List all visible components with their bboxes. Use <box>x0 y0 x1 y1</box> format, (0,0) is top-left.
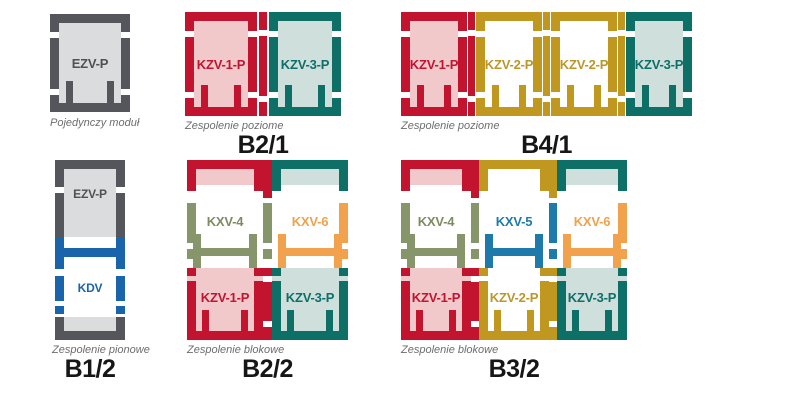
kxv-side-bar <box>471 249 479 259</box>
module-label: KZV-1-P <box>194 12 248 116</box>
module-side-stub <box>339 268 348 276</box>
module-label: KZV-3-P <box>272 286 348 308</box>
kxv-side-bar <box>618 203 627 243</box>
divider-bar-top <box>263 160 272 198</box>
module-side-stub <box>557 268 566 276</box>
frame-notch <box>458 92 467 98</box>
frame-notch <box>121 32 130 38</box>
coupling-bar-cross <box>64 248 116 257</box>
group-title: B2/1 <box>185 131 341 160</box>
frame-notch <box>551 92 560 98</box>
top-bracket-fill <box>281 169 339 185</box>
top-bracket-fill <box>566 169 618 185</box>
module-label: KXV-6 <box>557 210 627 232</box>
frame-notch <box>185 31 194 37</box>
frame-notch <box>50 32 59 38</box>
module-frame-left <box>269 12 278 116</box>
kxv-side-bar <box>339 249 348 259</box>
top-bracket-stub <box>339 169 348 191</box>
module-label: KXV-6 <box>272 210 348 232</box>
module-frame-right <box>116 169 125 239</box>
module-frame-right <box>608 12 617 116</box>
module-label: KZV-2-P <box>479 286 549 308</box>
frame-inner-stub <box>494 310 501 331</box>
connector-notch <box>543 30 550 36</box>
connector-notch <box>263 276 272 282</box>
module-label: EZV-P <box>55 184 125 204</box>
frame-notch <box>608 92 617 98</box>
module-label: KZV-1-P <box>401 286 471 308</box>
connector-notch <box>543 96 550 102</box>
frame-notch <box>121 89 130 95</box>
top-bracket-bar <box>401 160 471 169</box>
frame-notch <box>551 31 560 37</box>
module-frame-left <box>551 12 560 116</box>
connector-notch <box>618 30 625 36</box>
frame-inner-stub <box>287 310 294 331</box>
frame-notch <box>608 31 617 37</box>
module-side-stub <box>462 268 471 276</box>
frame-notch <box>683 31 692 37</box>
connector-notch <box>471 321 479 327</box>
connector-notch <box>549 321 557 327</box>
module-label: KZV-2-P <box>485 12 533 116</box>
frame-notch <box>332 31 341 37</box>
module-label: KXV-4 <box>187 210 263 232</box>
top-bracket-fill <box>488 169 540 185</box>
kxv-bracket-bar <box>407 248 465 256</box>
module-frame-right <box>116 317 125 331</box>
module-label: KZV-1-P <box>187 286 263 308</box>
module-frame-left <box>476 12 485 116</box>
top-bracket-fill <box>196 169 254 185</box>
frame-inner-stub <box>241 310 248 331</box>
module-side-stub <box>116 306 125 314</box>
module-frame-right <box>121 14 130 112</box>
frame-inner-stub <box>202 310 209 331</box>
frame-notch <box>248 92 257 98</box>
module-side-stub <box>479 268 488 276</box>
group-title: B3/2 <box>401 355 627 384</box>
module-frame-left <box>626 12 635 116</box>
frame-notch <box>683 92 692 98</box>
kxv-bracket-bar <box>563 248 621 256</box>
connector-notch <box>618 96 625 102</box>
group-title: B1/2 <box>55 355 125 384</box>
top-bracket-stub <box>401 169 410 191</box>
kxv-bracket-bar <box>485 248 543 256</box>
coupling-bar-right <box>116 237 125 269</box>
top-bracket-bar <box>272 160 348 169</box>
kxv-side-bar <box>187 203 196 243</box>
connector-notch <box>549 276 557 282</box>
module-frame-right <box>683 12 692 116</box>
kxv-side-bar <box>471 203 479 243</box>
module-frame-left <box>55 317 64 331</box>
top-bracket-stub <box>254 169 263 191</box>
module-frame-top <box>55 160 125 169</box>
frame-inner-stub <box>605 310 612 331</box>
frame-notch <box>269 92 278 98</box>
module-side-stub <box>401 268 410 276</box>
top-bracket-stub <box>187 169 196 191</box>
divider-bar-top <box>549 160 557 198</box>
kxv-bracket-bar <box>278 248 342 256</box>
top-bracket-stub <box>557 169 566 191</box>
kxv-side-bar <box>187 249 196 259</box>
top-bracket-bar <box>557 160 627 169</box>
frame-inner-stub <box>572 310 579 331</box>
top-bracket-stub <box>272 169 281 191</box>
module-label: KZV-2-P <box>560 12 608 116</box>
kxv-side-bar <box>618 249 627 259</box>
module-label: KXV-4 <box>401 210 471 232</box>
divider-bar-top <box>471 160 479 198</box>
module-frame-left <box>401 12 410 116</box>
module-side-stub <box>254 268 263 276</box>
top-bracket-stub <box>479 169 488 191</box>
kxv-side-bar <box>549 249 557 259</box>
group-title: B2/2 <box>187 355 348 384</box>
connector-notch <box>468 96 475 102</box>
module-label: KZV-3-P <box>557 286 627 308</box>
group-caption: Pojedynczy moduł <box>50 117 139 129</box>
module-frame-left <box>50 14 59 112</box>
module-label: KXV-5 <box>479 210 549 232</box>
connector-notch <box>259 96 267 102</box>
module-frame-right <box>248 12 257 116</box>
top-bracket-stub <box>462 169 471 191</box>
flashing-combinations-diagram: EZV-PPojedynczy modułKZV-1-PKZV-3-PZespo… <box>0 0 800 400</box>
kxv-side-bar <box>339 203 348 243</box>
module-label: KZV-3-P <box>278 12 332 116</box>
module-frame-right <box>458 12 467 116</box>
frame-notch <box>269 31 278 37</box>
module-frame-bottom <box>187 331 263 340</box>
top-bracket-stub <box>540 169 549 191</box>
module-frame-right <box>332 12 341 116</box>
frame-notch <box>533 31 542 37</box>
module-side-stub <box>618 268 627 276</box>
kxv-side-bar <box>401 249 410 259</box>
frame-notch <box>533 92 542 98</box>
kxv-side-bar <box>263 249 272 259</box>
module-frame-bottom <box>401 331 471 340</box>
kxv-side-bar <box>263 203 272 243</box>
module-frame-left <box>185 12 194 116</box>
coupling-bar-left <box>55 237 64 269</box>
frame-notch <box>626 31 635 37</box>
module-side-stub <box>540 268 549 276</box>
module-frame-left <box>55 169 64 239</box>
frame-notch <box>476 92 485 98</box>
frame-notch <box>185 92 194 98</box>
module-label: KZV-1-P <box>410 12 458 116</box>
group-title: B4/1 <box>401 131 692 160</box>
module-side-stub <box>272 268 281 276</box>
top-bracket-fill <box>410 169 462 185</box>
frame-notch <box>332 92 341 98</box>
frame-notch <box>401 92 410 98</box>
kxv-side-bar <box>401 203 410 243</box>
module-frame-bottom <box>557 331 627 340</box>
frame-inner-stub <box>449 310 456 331</box>
module-frame-bottom <box>479 331 549 340</box>
frame-notch <box>401 31 410 37</box>
frame-notch <box>248 31 257 37</box>
top-bracket-bar <box>479 160 549 169</box>
module-fill <box>64 317 116 331</box>
module-side-stub <box>187 268 196 276</box>
kxv-side-bar <box>549 203 557 243</box>
kxv-bracket-bar <box>193 248 257 256</box>
module-side-stub <box>55 306 64 314</box>
module-frame-bottom <box>272 331 348 340</box>
connector-notch <box>263 321 272 327</box>
module-label: KZV-3-P <box>635 12 683 116</box>
frame-inner-stub <box>326 310 333 331</box>
module-frame-bottom <box>55 331 125 340</box>
connector-notch <box>471 276 479 282</box>
frame-notch <box>458 31 467 37</box>
top-bracket-stub <box>618 169 627 191</box>
connector-notch <box>468 30 475 36</box>
connector-notch <box>259 30 267 36</box>
frame-inner-stub <box>527 310 534 331</box>
frame-notch <box>476 31 485 37</box>
module-label: EZV-P <box>59 14 121 112</box>
module-frame-right <box>533 12 542 116</box>
frame-notch <box>50 89 59 95</box>
module-label: KDV <box>55 278 125 298</box>
top-bracket-bar <box>187 160 263 169</box>
frame-inner-stub <box>416 310 423 331</box>
frame-notch <box>626 92 635 98</box>
